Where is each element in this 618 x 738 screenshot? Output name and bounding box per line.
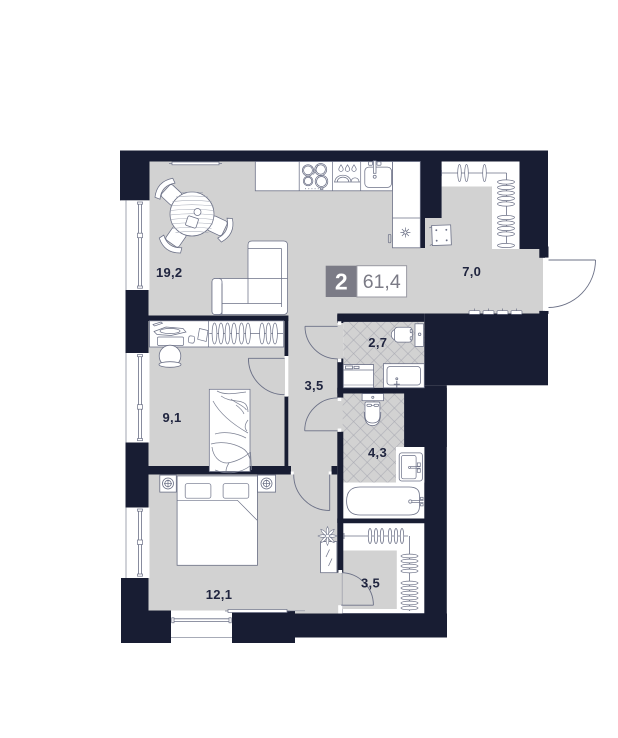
svg-text:61,4: 61,4	[363, 271, 401, 293]
svg-text:3,5: 3,5	[361, 576, 380, 591]
svg-text:2,7: 2,7	[368, 335, 387, 350]
svg-text:3,5: 3,5	[305, 378, 324, 393]
svg-text:4,3: 4,3	[368, 445, 387, 460]
svg-text:2: 2	[335, 269, 348, 295]
svg-text:19,2: 19,2	[156, 265, 183, 280]
svg-text:7,0: 7,0	[462, 264, 481, 279]
svg-text:12,1: 12,1	[206, 587, 233, 602]
svg-text:9,1: 9,1	[163, 410, 182, 425]
